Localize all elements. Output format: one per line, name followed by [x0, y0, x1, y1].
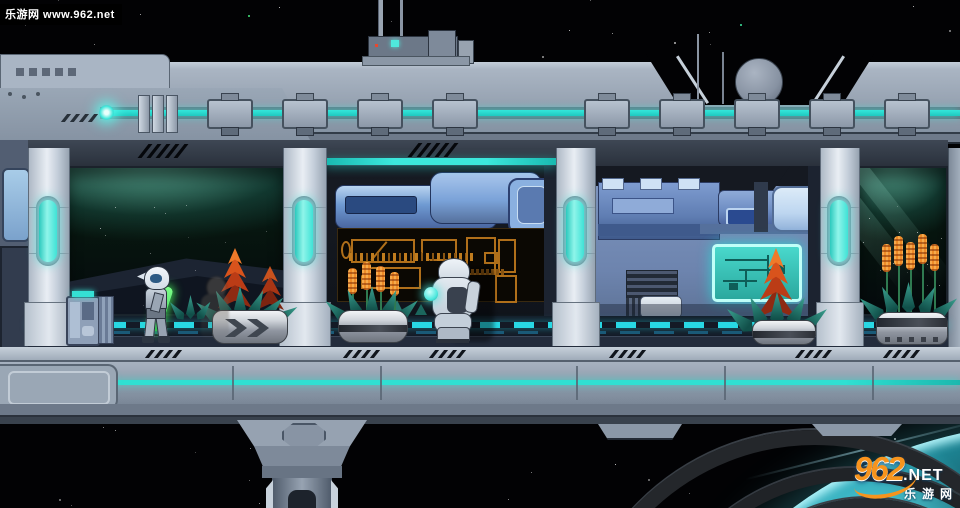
- crate-slot: [82, 326, 94, 336]
- star: [154, 207, 155, 208]
- circuit-line: [725, 259, 769, 261]
- conduit-light: [0, 380, 960, 385]
- plant-pot-right-window: [876, 312, 948, 345]
- star: [508, 499, 509, 500]
- flower-spike: [930, 244, 939, 271]
- antenna-base: [362, 56, 470, 66]
- star: [897, 206, 898, 207]
- star: [100, 228, 101, 229]
- right-edge-trim: [948, 148, 960, 347]
- conduit-clamp: [584, 99, 630, 129]
- beam-seam: [576, 366, 578, 400]
- hull-tab: [598, 424, 682, 440]
- star: [612, 33, 613, 34]
- star: [188, 237, 189, 238]
- pot-band: [877, 318, 947, 327]
- star: [140, 14, 141, 15]
- machinery-panel: [612, 198, 674, 214]
- pillar-foot: [552, 302, 600, 346]
- pot-band: [753, 331, 815, 338]
- star: [710, 44, 711, 45]
- pylon-slot: [288, 490, 316, 508]
- rivet: [8, 92, 12, 96]
- conduit-clamp: [357, 99, 403, 129]
- stem: [898, 262, 900, 316]
- star: [927, 285, 928, 286]
- star: [186, 205, 187, 206]
- flower-spike: [906, 242, 915, 270]
- machinery-ring-hole: [517, 186, 547, 224]
- conduit-clamp: [734, 99, 780, 129]
- star: [259, 503, 260, 504]
- circuit-line: [723, 280, 757, 282]
- logo-962: 962.NET 乐游网: [854, 452, 958, 502]
- machinery-slot: [345, 196, 417, 214]
- flower-spike: [376, 266, 385, 292]
- conduit-clamp: [207, 99, 253, 129]
- star: [939, 285, 940, 286]
- star-green: [248, 15, 250, 17]
- star: [674, 42, 676, 44]
- conduit-clamp: [659, 99, 705, 129]
- scene[interactable]: 乐游网 www.962.net 962.NET 乐游网: [0, 0, 960, 508]
- circuit-chip: [729, 283, 738, 290]
- glow-tube: [566, 200, 584, 262]
- conduit-node: [99, 105, 114, 120]
- crate-panel: [70, 302, 80, 338]
- star: [250, 448, 251, 449]
- pot-feet-dots: [885, 337, 941, 342]
- crate-stack: [98, 296, 114, 344]
- star: [71, 505, 72, 506]
- conduit-clamp: [809, 99, 855, 129]
- star: [391, 21, 392, 22]
- player-boot: [142, 336, 154, 343]
- star: [949, 30, 951, 32]
- star: [266, 231, 267, 232]
- flower-spike: [390, 272, 399, 296]
- antenna-pole: [697, 34, 699, 104]
- pylon-octagon: [282, 423, 326, 448]
- star: [941, 238, 942, 239]
- star: [249, 480, 250, 481]
- flower-spike: [882, 244, 891, 272]
- star: [195, 452, 196, 453]
- antenna-light-red: [375, 44, 378, 47]
- antenna-pole: [722, 52, 724, 104]
- machinery-bracket: [754, 182, 768, 232]
- crate-inset: [82, 302, 94, 320]
- star: [590, 0, 591, 1]
- rivet: [22, 95, 26, 99]
- flower-spike: [894, 236, 903, 266]
- star-green: [740, 24, 742, 26]
- flower-spike: [918, 234, 927, 264]
- hull-tab: [812, 424, 902, 436]
- plant-pot-middle: [338, 310, 408, 343]
- robot-eye-orb: [424, 287, 438, 301]
- console-shape: [498, 239, 516, 273]
- antenna-light-cyan: [391, 40, 399, 47]
- star: [94, 44, 95, 45]
- circuit-panel[interactable]: [712, 244, 802, 302]
- player-visor: [150, 274, 162, 283]
- beam-seam: [380, 366, 382, 400]
- circuit-line: [745, 269, 747, 287]
- star: [59, 499, 61, 501]
- star: [542, 56, 544, 58]
- star: [880, 270, 881, 271]
- pylon-collar: [262, 466, 342, 478]
- conduit-bracket: [166, 95, 178, 133]
- crate-light: [72, 291, 94, 297]
- machinery-tab: [640, 178, 662, 190]
- star: [648, 479, 650, 481]
- beam-seam: [872, 366, 874, 400]
- conduit-clamp: [884, 99, 930, 129]
- window-hull-wedge: [68, 168, 283, 314]
- window-left: [66, 166, 285, 316]
- ghost-body: [201, 294, 229, 340]
- star: [569, 30, 570, 31]
- star: [165, 213, 166, 214]
- ghost-figure: [196, 272, 240, 342]
- star: [58, 0, 59, 1]
- star: [115, 207, 116, 208]
- conduit-clamp: [282, 99, 328, 129]
- flower-spike: [348, 268, 357, 294]
- star: [709, 32, 710, 33]
- hull-vent-row: [16, 68, 80, 76]
- pot-chevron: [247, 319, 269, 337]
- star: [150, 253, 151, 254]
- conduit-bracket: [138, 95, 150, 133]
- star: [105, 235, 106, 236]
- star: [913, 6, 914, 7]
- plant-pot-right-room: [752, 320, 816, 345]
- glow-tube: [295, 200, 313, 262]
- star: [103, 427, 104, 428]
- star: [615, 464, 616, 465]
- grass-tuft: [415, 304, 427, 315]
- flower-spike: [362, 262, 371, 290]
- conduit-bracket: [152, 95, 164, 133]
- left-edge-panel: [2, 168, 30, 242]
- hull-cap-outline: [8, 371, 110, 405]
- room-trim: [808, 166, 820, 316]
- glow-tube: [39, 200, 57, 262]
- robot-foot: [436, 339, 469, 343]
- star: [279, 7, 280, 8]
- machinery-tab: [678, 178, 700, 190]
- watermark: 乐游网 www.962.net: [0, 4, 122, 25]
- room-middle-cyan-strip: [325, 158, 556, 165]
- hull-shadow: [0, 417, 960, 424]
- room-trim: [544, 166, 556, 316]
- hull-taper: [0, 404, 960, 417]
- star: [25, 25, 26, 26]
- star: [531, 472, 532, 473]
- pylon-collar: [254, 446, 350, 468]
- pillar-foot: [816, 302, 864, 346]
- rivet: [36, 92, 40, 96]
- star: [225, 242, 226, 243]
- pot-band: [339, 325, 407, 332]
- console-shape: [495, 275, 517, 303]
- beam-seam: [724, 366, 726, 400]
- beam-seam: [232, 366, 234, 400]
- machinery-tab: [602, 178, 624, 190]
- star: [115, 430, 116, 431]
- glow-tube: [830, 200, 848, 262]
- player-boot: [158, 336, 170, 343]
- conduit-clamp: [432, 99, 478, 129]
